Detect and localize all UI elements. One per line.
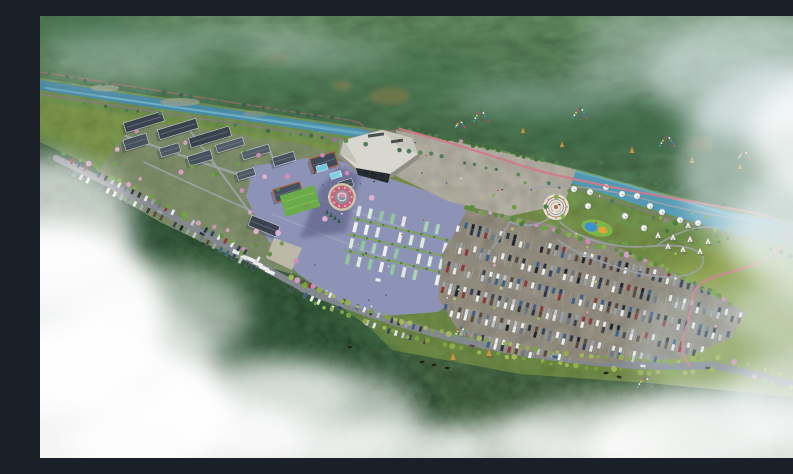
rendering-canvas	[40, 16, 793, 458]
aerial-site-rendering	[40, 16, 793, 458]
mandala-center	[554, 205, 558, 209]
playground-dot	[595, 222, 597, 224]
